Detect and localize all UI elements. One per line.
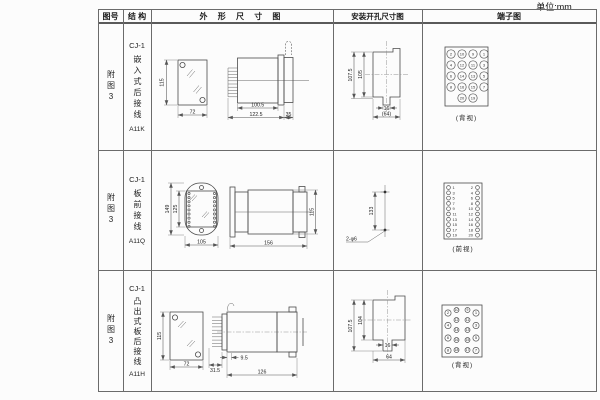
- figure-label: 附图3: [107, 193, 115, 227]
- svg-text:14: 14: [469, 217, 474, 222]
- dim-label: 16: [385, 343, 391, 349]
- terminal-diagram-row3: 246810121416189111315171357 (背视): [437, 300, 492, 372]
- code-label: A11K: [129, 126, 144, 133]
- svg-text:17: 17: [466, 348, 470, 352]
- dim-label: 115: [157, 332, 163, 340]
- svg-text:9: 9: [472, 51, 475, 56]
- terminal-view-label: (背视): [452, 360, 473, 369]
- header-terminal: 端子图: [422, 9, 596, 23]
- svg-text:17: 17: [453, 227, 458, 232]
- grid-line: [596, 9, 597, 391]
- terminal-diagram-row2: 1357911131517192468101214161820 (前视): [440, 178, 500, 262]
- svg-text:19: 19: [453, 233, 458, 238]
- grid-line: [98, 270, 597, 271]
- dim-label: 122.5: [250, 112, 263, 118]
- svg-text:3: 3: [483, 62, 486, 67]
- svg-text:20: 20: [469, 233, 474, 238]
- dim-label: (64): [382, 111, 391, 117]
- svg-text:11: 11: [453, 212, 458, 217]
- svg-text:2: 2: [447, 310, 450, 315]
- svg-text:9: 9: [467, 308, 469, 312]
- figure-label: 附图3: [107, 314, 115, 348]
- header-structure: 结 构: [123, 9, 151, 23]
- svg-text:16: 16: [469, 222, 474, 227]
- svg-text:11: 11: [466, 318, 470, 322]
- figure-cell-row1: 附图3: [98, 23, 123, 150]
- grid-line: [98, 150, 597, 151]
- svg-text:8: 8: [450, 84, 453, 89]
- front-view: 115 72: [160, 60, 208, 118]
- dim-label: 64: [386, 355, 392, 361]
- install-diagram-row1: 107.5 105 16 (64): [333, 24, 422, 150]
- svg-text:1: 1: [475, 310, 478, 315]
- code-label: A11H: [129, 371, 145, 378]
- svg-text:6: 6: [450, 73, 453, 78]
- dim-label: 72: [190, 110, 196, 116]
- outline-diagram-row3: 115 72 9.5 31.5 126: [155, 290, 330, 395]
- svg-text:4: 4: [447, 323, 450, 328]
- svg-text:7: 7: [453, 201, 456, 206]
- svg-text:1: 1: [483, 51, 486, 56]
- svg-text:14: 14: [455, 328, 459, 332]
- front-view: 149 125 105: [165, 183, 218, 248]
- svg-text:5: 5: [453, 196, 456, 201]
- dim-label: 156: [264, 241, 273, 247]
- dim-label: 126: [258, 370, 267, 376]
- dim-label: 105: [358, 70, 364, 79]
- svg-text:13: 13: [466, 328, 470, 332]
- dim-label: 31.5: [210, 368, 220, 374]
- dim-label: 115: [160, 78, 166, 86]
- front-view: 115 72: [157, 312, 203, 370]
- svg-text:14: 14: [460, 73, 465, 78]
- outline-diagram-row2: 149 125 105 156 115: [160, 170, 325, 266]
- svg-text:16: 16: [460, 84, 465, 89]
- model-label: CJ-1: [129, 284, 145, 293]
- side-view: 100.5 122.5 35: [228, 42, 309, 121]
- dim-label: 125: [173, 205, 179, 214]
- dim-label: 133: [369, 207, 375, 216]
- structure-label: 板前接线: [133, 189, 141, 233]
- svg-text:6: 6: [471, 196, 474, 201]
- dim-label: 149: [165, 205, 171, 214]
- header-figure: 图号: [98, 9, 123, 23]
- svg-text:12: 12: [460, 62, 465, 67]
- install-diagram-row3: 107.5 104 16 64: [333, 285, 422, 390]
- svg-text:4: 4: [450, 62, 453, 67]
- svg-text:8: 8: [447, 348, 450, 353]
- side-view: 156 115: [230, 187, 318, 250]
- structure-label: 凸出式板后接线: [133, 297, 141, 367]
- svg-text:13: 13: [453, 217, 458, 222]
- install-diagram-row2: 133 2-φ6: [333, 160, 422, 270]
- dim-label: 107.5: [348, 68, 354, 81]
- terminal-holes-row3: 246810121416189111315171357: [445, 308, 479, 354]
- svg-text:15: 15: [471, 84, 476, 89]
- datasheet-page: 单位:mm 图号 结 构 外 形 尺 寸 图 安装开孔尺寸图 端子图 附图3 C…: [0, 0, 600, 400]
- svg-text:10: 10: [469, 206, 474, 211]
- svg-text:19: 19: [471, 95, 476, 100]
- svg-text:12: 12: [469, 212, 474, 217]
- side-view: 9.5 31.5 126: [209, 303, 307, 378]
- terminal-view-label: (背视): [456, 113, 477, 122]
- dim-label: 72: [184, 362, 190, 368]
- grid-line: [422, 9, 423, 391]
- outline-diagram-row1: 115 72 100.5 122.5 35: [151, 24, 333, 150]
- svg-text:1: 1: [453, 185, 456, 190]
- structure-label: 嵌入式后接线: [133, 55, 141, 121]
- svg-text:2: 2: [450, 51, 453, 56]
- structure-cell-row1: CJ-1 嵌入式后接线 A11K: [123, 23, 151, 150]
- dim-label: 107.5: [348, 319, 354, 332]
- svg-text:20: 20: [460, 95, 465, 100]
- dim-label: 115: [310, 208, 316, 216]
- svg-text:2: 2: [471, 185, 474, 190]
- svg-text:15: 15: [466, 338, 470, 342]
- dim-label: 104: [358, 316, 364, 325]
- terminal-view-label: (前视): [452, 244, 473, 253]
- svg-text:6: 6: [447, 335, 450, 340]
- figure-label: 附图3: [107, 70, 115, 104]
- svg-text:3: 3: [475, 323, 478, 328]
- svg-text:11: 11: [471, 62, 476, 67]
- dim-label: 9.5: [241, 356, 248, 362]
- svg-text:10: 10: [455, 308, 459, 312]
- svg-text:5: 5: [483, 73, 486, 78]
- terminal-holes-row2: 1357911131517192468101214161820: [447, 185, 480, 238]
- svg-text:15: 15: [453, 222, 458, 227]
- header-outline: 外 形 尺 寸 图: [151, 9, 333, 23]
- svg-text:16: 16: [455, 338, 459, 342]
- terminal-holes-row1: 210914121136141358161572019: [447, 50, 488, 102]
- svg-text:7: 7: [475, 348, 478, 353]
- structure-cell-row2: CJ-1 板前接线 A11Q: [123, 150, 151, 270]
- structure-cell-row3: CJ-1 凸出式板后接线 A11H: [123, 270, 151, 391]
- dim-label: 100.5: [251, 103, 264, 109]
- code-label: A11Q: [129, 238, 145, 245]
- svg-text:10: 10: [460, 51, 465, 56]
- dim-label: 105: [197, 240, 206, 246]
- header-install: 安装开孔尺寸图: [333, 9, 422, 23]
- svg-text:12: 12: [455, 318, 459, 322]
- svg-text:13: 13: [471, 73, 476, 78]
- svg-text:7: 7: [483, 84, 486, 89]
- svg-text:8: 8: [471, 201, 474, 206]
- figure-cell-row2: 附图3: [98, 150, 123, 270]
- svg-text:4: 4: [471, 190, 474, 195]
- svg-text:5: 5: [475, 335, 478, 340]
- dim-label: 35: [286, 112, 292, 118]
- figure-cell-row3: 附图3: [98, 270, 123, 391]
- svg-text:18: 18: [469, 227, 474, 232]
- svg-text:3: 3: [453, 190, 456, 195]
- model-label: CJ-1: [129, 41, 145, 50]
- svg-text:9: 9: [453, 206, 456, 211]
- terminal-diagram-row1: 210914121136141358161572019 (背视): [440, 40, 500, 126]
- svg-text:18: 18: [455, 348, 459, 352]
- model-label: CJ-1: [129, 175, 145, 184]
- hole-spec-label: 2-φ6: [346, 237, 357, 243]
